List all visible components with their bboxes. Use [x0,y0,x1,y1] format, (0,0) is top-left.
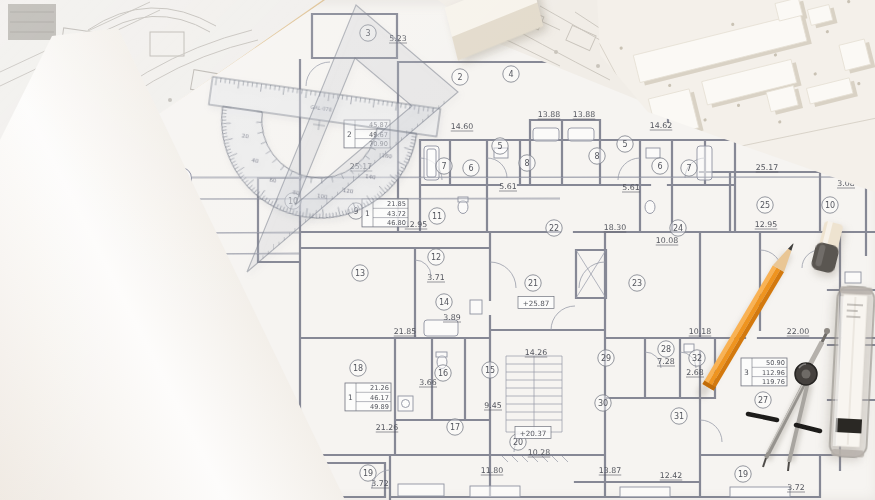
cap-eraser [810,220,845,274]
drafting-tools-layer: 20406080100120140160 GAL-078 [0,0,875,500]
compass-needle-left [763,458,766,467]
pencil-facet-mid [706,267,780,388]
compass-needle-right [788,462,789,471]
compass-top-knob [824,328,830,334]
compass [748,328,830,471]
pencil [700,240,799,396]
protractor-degree-label: 40 [251,157,259,164]
tube-black-band [835,418,862,433]
drafting-table-scene: E324765885679101112131415161718192021222… [0,0,875,500]
lead-case-tube [829,286,875,458]
protractor-degree-label: 60 [269,177,277,184]
pencil-facet-bottom [710,270,784,391]
set-square-triangle [247,5,458,272]
set-square-outline [247,5,458,272]
compass-knob-center [802,370,811,379]
protractor-degree-label: 20 [241,132,249,139]
pencil-facet-top [702,265,776,386]
